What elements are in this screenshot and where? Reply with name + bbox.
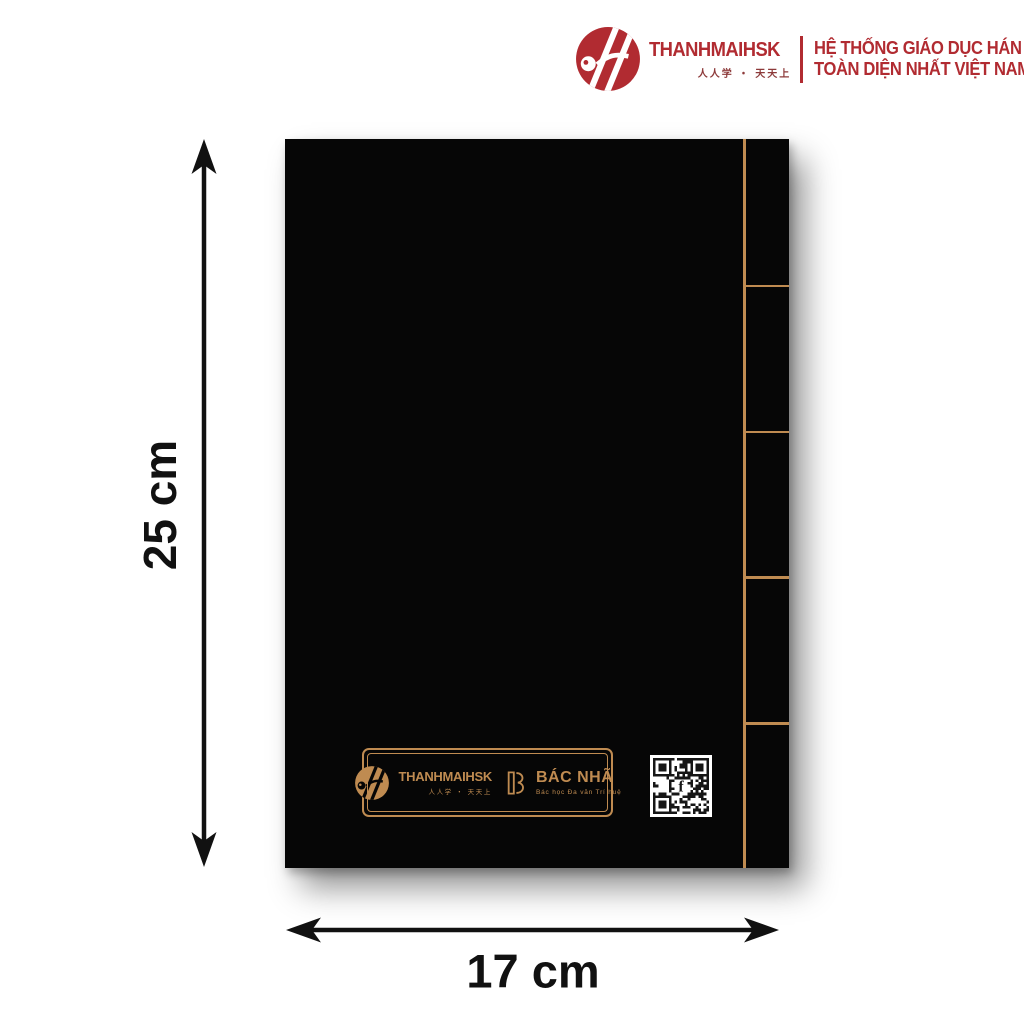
publisher-plate: THANHMAIHSK 人人学 ・ 天天上 BÁC NHÃ Bác học Đa… <box>362 748 613 817</box>
slogan-line-1: HỆ THỐNG GIÁO DỤC HÁN NGỮ <box>814 38 1024 59</box>
product-spec-image: THANHMAIHSK 人人学 ・ 天天上 HỆ THỐNG GIÁO DỤC … <box>0 0 1024 1024</box>
plate-brand-block: THANHMAIHSK 人人学 ・ 天天上 <box>399 769 492 796</box>
height-arrow <box>186 138 222 868</box>
plate-partner-block: BÁC NHÃ Bác học Đa văn Trí huệ <box>536 769 622 796</box>
height-label: 25 cm <box>133 440 187 570</box>
brand-chinese-tagline: 人人学 ・ 天天上 <box>698 65 792 80</box>
brand-slogan: HỆ THỐNG GIÁO DỤC HÁN NGỮ TOÀN DIỆN NHẤT… <box>814 38 1024 80</box>
tab-divider <box>743 431 789 434</box>
thanhmaihsk-gold-logo-icon <box>354 765 390 801</box>
slogan-line-2: TOÀN DIỆN NHẤT VIỆT NAM <box>814 59 1024 80</box>
qr-code: f <box>650 755 712 817</box>
notebook-cover: THANHMAIHSK 人人学 ・ 天天上 BÁC NHÃ Bác học Đa… <box>285 139 789 868</box>
cover-accent-line <box>743 139 746 868</box>
brand-name: THANHMAIHSK <box>649 39 780 62</box>
header-divider <box>800 36 803 83</box>
svg-text:f: f <box>678 779 684 796</box>
plate-brand-name: THANHMAIHSK <box>399 769 492 784</box>
partner-name: BÁC NHÃ <box>536 769 613 787</box>
brand-header: THANHMAIHSK 人人学 ・ 天天上 HỆ THỐNG GIÁO DỤC … <box>574 23 1024 95</box>
tab-divider <box>743 285 789 288</box>
tab-divider <box>743 722 789 725</box>
plate-brand-chinese: 人人学 ・ 天天上 <box>428 786 492 796</box>
width-label: 17 cm <box>466 944 599 999</box>
brand-text-block: THANHMAIHSK 人人学 ・ 天天上 <box>649 39 791 80</box>
bacnha-book-icon <box>501 769 527 797</box>
tab-divider <box>743 576 789 579</box>
partner-tagline: Bác học Đa văn Trí huệ <box>536 789 622 796</box>
thanhmaihsk-logo-icon <box>574 25 642 93</box>
